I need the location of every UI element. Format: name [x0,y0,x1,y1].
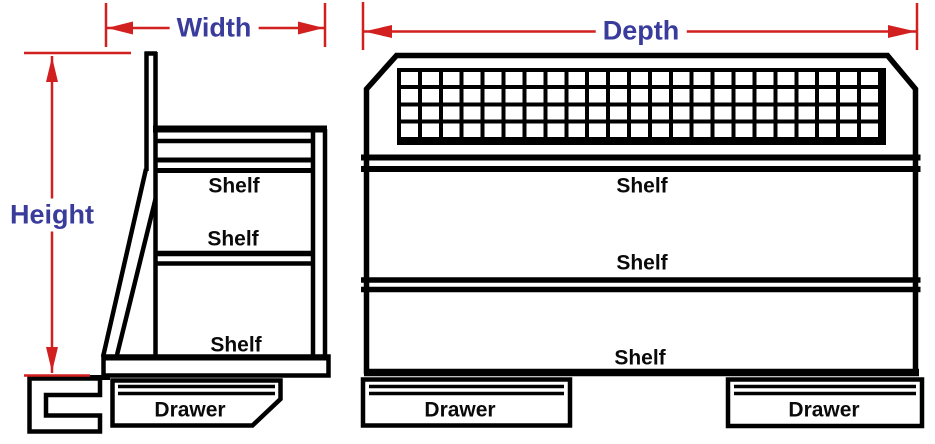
side-rear-channel [313,126,325,371]
front-shelf-band-2 [361,280,921,290]
front-shelf-label-2: Shelf [616,253,667,274]
side-middle-shelf [157,254,313,264]
side-base [85,357,329,378]
width-dimension-label: Width [170,12,259,45]
depth-arrow-left [364,25,392,38]
side-top-shelf-assembly [153,129,327,171]
side-shelf-label-1: Shelf [208,176,259,197]
width-arrow-right [298,22,324,35]
front-drawer-label-right: Drawer [788,400,859,421]
height-arrow-down [46,347,58,372]
width-arrow-left [107,22,133,35]
side-shelf-label-3: Shelf [210,335,261,356]
diagram-line-art [0,0,935,444]
front-shelf-label-1: Shelf [616,176,667,197]
height-arrow-up [46,57,58,82]
height-dimension-label: Height [3,199,101,232]
mesh-grid [397,68,886,145]
front-shelf-band-1 [361,158,921,170]
side-shelf-label-2: Shelf [207,229,258,250]
front-drawer-label-left: Drawer [424,400,495,421]
shelving-dimension-diagram: Width Depth Height Shelf Shelf Shelf Dra… [0,0,935,444]
side-drawer-label: Drawer [154,400,225,421]
side-c-bracket [30,379,101,432]
front-shelf-label-3: Shelf [614,348,665,369]
side-diagonal-brace [103,169,156,357]
depth-dimension-label: Depth [596,15,687,48]
depth-arrow-right [888,25,916,38]
